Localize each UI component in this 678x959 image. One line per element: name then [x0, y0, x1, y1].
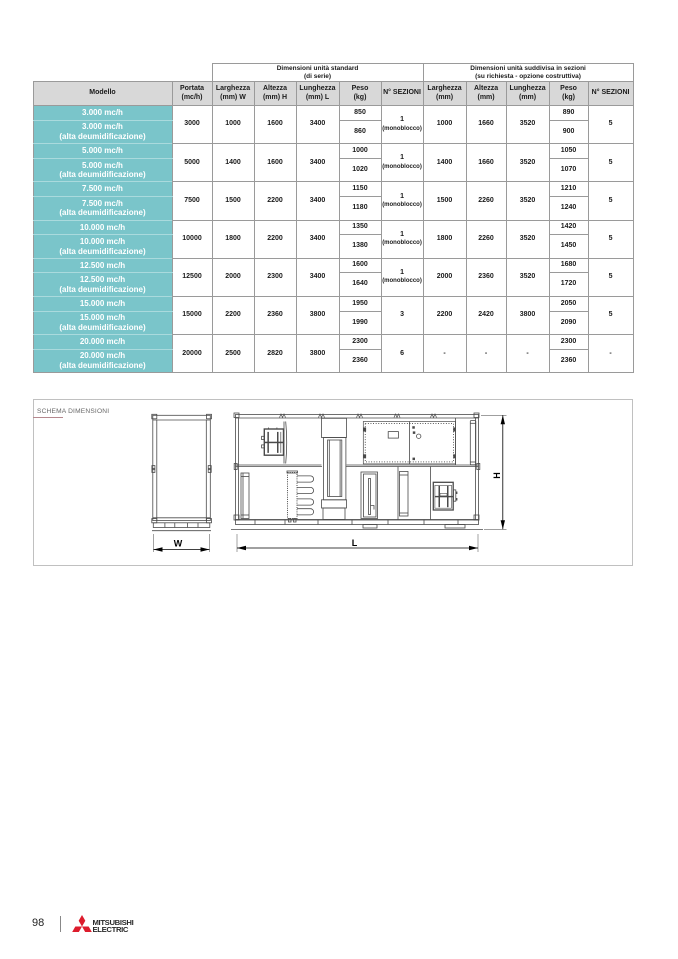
svg-text:H: H — [492, 472, 502, 479]
svg-text:L: L — [352, 538, 358, 548]
svg-text:W: W — [174, 539, 183, 549]
